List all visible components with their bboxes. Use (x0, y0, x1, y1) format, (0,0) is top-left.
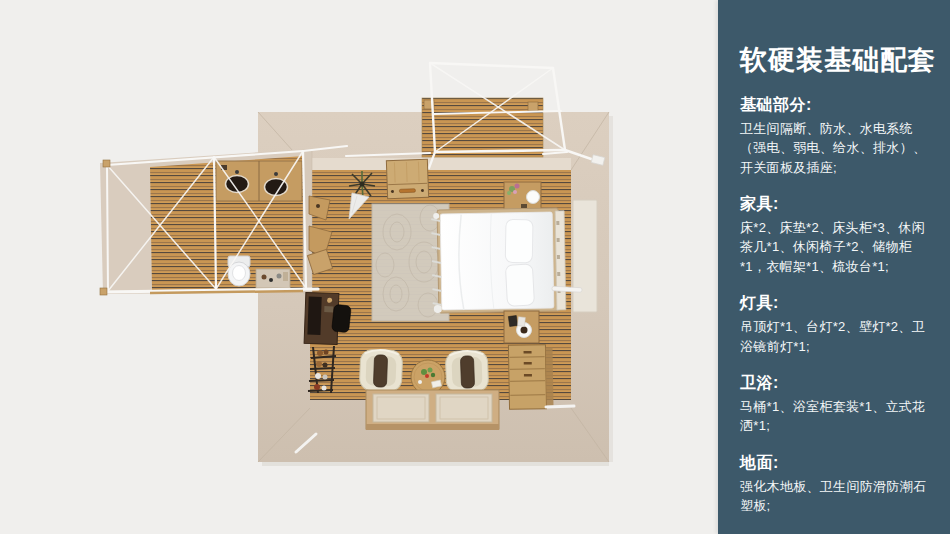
section-furniture: 家具: 床*2、床垫*2、床头柜*3、休闲茶几*1、休闲椅子*2、储物柜*1，衣… (740, 194, 936, 276)
headboard (555, 211, 566, 310)
section-heading: 基础部分: (740, 95, 936, 116)
section-body: 马桶*1、浴室柜套装*1、立式花洒*1; (740, 397, 936, 436)
wall-shelf-rack (307, 196, 332, 275)
section-body: 床*2、床垫*2、床头柜*3、休闲茶几*1、休闲椅子*2、储物柜*1，衣帽架*1… (740, 218, 936, 277)
table-lamp (527, 191, 540, 204)
chair-cushion (460, 356, 474, 388)
section-bathroom: 卫浴: 马桶*1、浴室柜套装*1、立式花洒*1; (740, 373, 936, 436)
section-body: 卫生间隔断、防水、水电系统（强电、弱电、给水、排水）、开关面板及插座; (740, 119, 936, 178)
floor-trim (546, 406, 574, 407)
section-heading: 卫浴: (740, 373, 936, 394)
section-body: 吊顶灯*1、台灯*2、壁灯*2、卫浴镜前灯*1; (740, 317, 936, 356)
desk-chair (332, 304, 352, 333)
drawer-handle (399, 189, 415, 193)
bathroom-wing (100, 146, 347, 295)
floor-mats (366, 390, 499, 430)
pillow (505, 264, 534, 306)
bathroom-vanity (216, 161, 302, 201)
nightstand-bottom (504, 311, 539, 343)
section-heading: 灯具: (740, 293, 936, 314)
section-heading: 家具: (740, 194, 936, 215)
coffee-table (411, 360, 445, 394)
photo-frame (508, 315, 517, 326)
floorplan-svg (0, 0, 718, 534)
north-wall-face (310, 158, 571, 171)
section-flooring: 地面: 强化木地板、卫生间防滑防潮石塑板; (740, 453, 936, 516)
wardrobe (508, 345, 553, 410)
section-basics: 基础部分: 卫生间隔断、防水、水电系统（强电、弱电、给水、排水）、开关面板及插座… (740, 95, 936, 177)
mat-right (436, 394, 492, 422)
canopy-foot (528, 102, 538, 111)
bath-side-table (256, 269, 290, 288)
photo-frame (517, 317, 525, 327)
toilet (228, 256, 250, 286)
section-heading: 地面: (740, 453, 936, 474)
armchair-right (445, 350, 488, 392)
chair-cushion (373, 355, 387, 387)
mat-left (373, 394, 429, 422)
canopy-foot (103, 160, 110, 167)
wall-panel-door (573, 200, 597, 312)
pillow (505, 219, 533, 262)
canopy-foot (100, 288, 107, 295)
laptop (307, 297, 321, 335)
armchair-left (359, 349, 402, 391)
sidebar-title: 软硬装基础配套 (740, 44, 936, 78)
floorplan-image (0, 0, 718, 534)
table-plant (421, 369, 427, 375)
faucet (235, 170, 239, 174)
section-lighting: 灯具: 吊顶灯*1、台灯*2、壁灯*2、卫浴镜前灯*1; (740, 293, 936, 356)
nightstand-top (504, 182, 541, 212)
faucet (274, 172, 278, 176)
slide: 软硬装基础配套 基础部分: 卫生间隔断、防水、水电系统（强电、弱电、给水、排水）… (0, 0, 950, 534)
page: { "sidebar": { "bg_color": "#3d596a", "t… (0, 0, 950, 534)
storage-cabinet (386, 159, 428, 198)
sidebar: 软硬装基础配套 基础部分: 卫生间隔断、防水、水电系统（强电、弱电、给水、排水）… (718, 0, 950, 534)
duvet (440, 212, 554, 310)
bed (431, 208, 566, 313)
section-body: 强化木地板、卫生间防滑防潮石塑板; (740, 477, 936, 516)
